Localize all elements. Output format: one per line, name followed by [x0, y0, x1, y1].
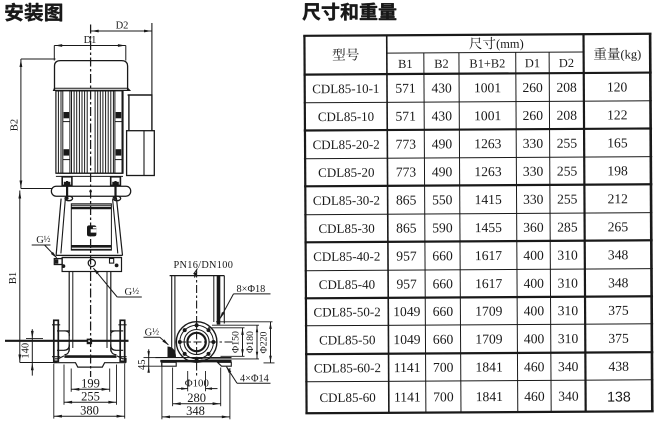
svg-text:380: 380: [80, 404, 99, 418]
svg-text:208: 208: [556, 80, 577, 95]
svg-text:Φ150: Φ150: [230, 331, 241, 353]
svg-text:348: 348: [608, 275, 629, 290]
svg-text:CDL85-60: CDL85-60: [319, 390, 375, 405]
svg-text:1001: 1001: [474, 80, 501, 95]
svg-text:375: 375: [608, 331, 629, 346]
svg-text:B1: B1: [398, 57, 413, 71]
svg-text:260: 260: [522, 80, 543, 95]
svg-text:Φ100: Φ100: [185, 377, 209, 389]
svg-text:D1: D1: [84, 35, 97, 46]
svg-text:460: 460: [524, 389, 545, 404]
svg-text:400: 400: [524, 303, 545, 318]
svg-text:1263: 1263: [474, 164, 501, 179]
svg-text:285: 285: [557, 220, 578, 235]
svg-text:265: 265: [608, 219, 629, 234]
svg-text:571: 571: [395, 81, 415, 96]
svg-text:CDL85-50-2: CDL85-50-2: [313, 304, 380, 319]
svg-text:255: 255: [81, 390, 100, 404]
svg-text:D2: D2: [559, 56, 574, 70]
svg-text:CDL85-40-2: CDL85-40-2: [313, 249, 380, 264]
svg-text:165: 165: [607, 135, 628, 150]
svg-text:B1: B1: [8, 272, 19, 284]
svg-text:957: 957: [396, 276, 417, 291]
svg-text:122: 122: [607, 107, 628, 122]
svg-text:1617: 1617: [475, 248, 502, 263]
svg-text:1141: 1141: [394, 389, 421, 404]
svg-text:½: ½: [152, 326, 159, 336]
svg-text:CDL85-40: CDL85-40: [319, 277, 375, 292]
svg-text:430: 430: [431, 80, 452, 95]
svg-text:571: 571: [395, 109, 415, 124]
svg-text:8×Φ18: 8×Φ18: [237, 284, 266, 295]
svg-text:400: 400: [524, 331, 545, 346]
svg-text:CDL85-50: CDL85-50: [319, 332, 375, 347]
svg-text:1841: 1841: [475, 359, 502, 374]
svg-text:1263: 1263: [474, 136, 501, 151]
svg-text:310: 310: [557, 248, 578, 263]
svg-text:310: 310: [558, 331, 579, 346]
svg-text:1415: 1415: [475, 192, 502, 207]
svg-text:CDL85-10-1: CDL85-10-1: [312, 81, 379, 96]
svg-text:1709: 1709: [475, 331, 502, 346]
svg-text:340: 340: [558, 359, 579, 374]
svg-text:660: 660: [433, 304, 454, 319]
svg-text:Φ220: Φ220: [258, 331, 269, 353]
svg-text:773: 773: [396, 164, 417, 179]
svg-text:490: 490: [432, 164, 453, 179]
svg-text:1049: 1049: [393, 332, 420, 347]
svg-text:1455: 1455: [475, 220, 502, 235]
svg-text:660: 660: [433, 276, 454, 291]
svg-text:120: 120: [607, 79, 628, 94]
svg-text:330: 330: [523, 192, 544, 207]
svg-text:773: 773: [396, 137, 417, 152]
svg-text:330: 330: [523, 164, 544, 179]
svg-text:550: 550: [432, 192, 453, 207]
svg-text:1049: 1049: [393, 304, 420, 319]
svg-text:360: 360: [523, 220, 544, 235]
svg-text:660: 660: [433, 332, 454, 347]
svg-text:CDL85-10: CDL85-10: [318, 109, 374, 124]
svg-text:310: 310: [558, 276, 579, 291]
svg-text:B2: B2: [434, 57, 449, 71]
svg-text:375: 375: [608, 303, 629, 318]
svg-text:280: 280: [187, 391, 206, 405]
svg-text:1709: 1709: [475, 303, 502, 318]
svg-text:348: 348: [186, 404, 205, 418]
svg-text:340: 340: [558, 389, 579, 404]
svg-text:½: ½: [132, 286, 139, 296]
svg-text:255: 255: [557, 136, 578, 151]
svg-text:330: 330: [523, 136, 544, 151]
svg-text:208: 208: [557, 108, 578, 123]
svg-text:348: 348: [608, 247, 629, 262]
svg-text:1617: 1617: [475, 276, 502, 291]
svg-text:D1: D1: [525, 56, 540, 70]
svg-text:660: 660: [432, 248, 453, 263]
svg-text:700: 700: [433, 389, 454, 404]
svg-text:CDL85-20-2: CDL85-20-2: [313, 137, 380, 152]
svg-text:½: ½: [44, 234, 51, 244]
svg-text:138: 138: [607, 389, 631, 405]
svg-text:199: 199: [81, 377, 100, 391]
svg-text:B2: B2: [9, 119, 20, 131]
svg-text:310: 310: [558, 303, 579, 318]
svg-text:1141: 1141: [394, 360, 421, 375]
svg-text:CDL85-30: CDL85-30: [318, 221, 374, 236]
svg-text:438: 438: [608, 359, 629, 374]
svg-text:Φ180: Φ180: [245, 331, 256, 353]
svg-text:255: 255: [557, 164, 578, 179]
svg-text:4×Φ14: 4×Φ14: [240, 373, 269, 384]
svg-text:400: 400: [524, 276, 545, 291]
svg-text:260: 260: [523, 108, 544, 123]
svg-text:255: 255: [557, 192, 578, 207]
svg-text:B1+B2: B1+B2: [469, 56, 505, 70]
svg-text:1001: 1001: [474, 108, 501, 123]
svg-text:865: 865: [396, 220, 417, 235]
svg-text:957: 957: [396, 248, 417, 263]
svg-text:CDL85-30-2: CDL85-30-2: [313, 193, 380, 208]
svg-text:PN16/DN100: PN16/DN100: [174, 260, 234, 271]
svg-text:CDL85-60-2: CDL85-60-2: [314, 360, 381, 375]
svg-text:590: 590: [432, 220, 453, 235]
svg-text:212: 212: [608, 191, 629, 206]
svg-text:1841: 1841: [476, 389, 503, 404]
svg-text:(kg): (kg): [620, 47, 641, 61]
svg-text:700: 700: [433, 360, 454, 375]
svg-text:(mm): (mm): [496, 37, 524, 51]
svg-text:140: 140: [21, 343, 32, 359]
svg-text:CDL85-20: CDL85-20: [318, 165, 374, 180]
svg-text:400: 400: [523, 248, 544, 263]
svg-text:198: 198: [607, 163, 628, 178]
svg-text:45: 45: [137, 360, 148, 371]
svg-text:460: 460: [524, 359, 545, 374]
svg-text:D2: D2: [116, 20, 129, 31]
svg-text:490: 490: [432, 136, 453, 151]
svg-text:865: 865: [396, 192, 417, 207]
svg-text:430: 430: [432, 108, 453, 123]
